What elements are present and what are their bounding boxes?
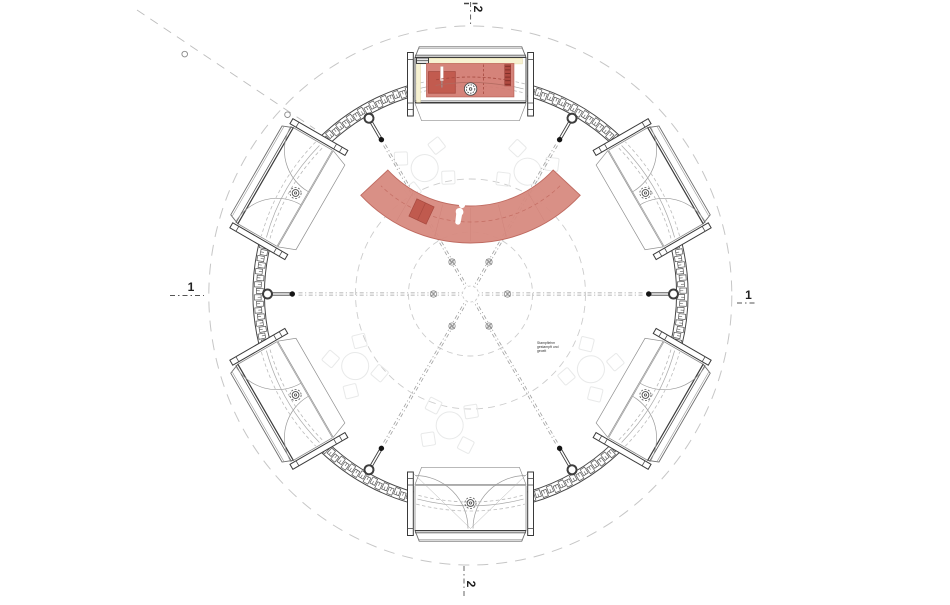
svg-text:2: 2 — [471, 6, 485, 13]
svg-text:2: 2 — [464, 581, 478, 588]
svg-text:1: 1 — [188, 280, 195, 294]
svg-text:geoelt: geoelt — [537, 349, 546, 353]
svg-text:1: 1 — [745, 288, 752, 302]
